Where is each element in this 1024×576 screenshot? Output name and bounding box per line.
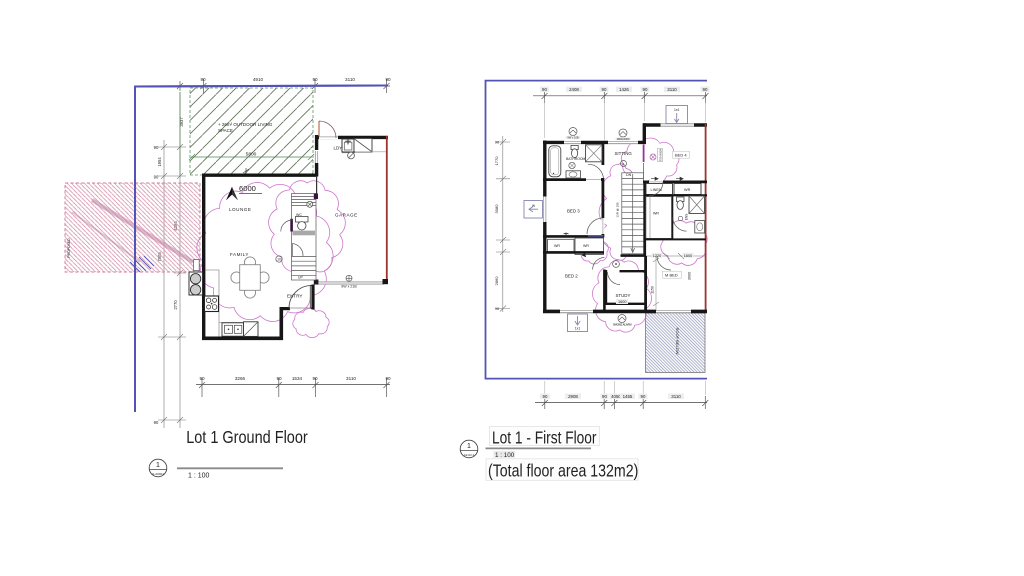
svg-text:W: W: [532, 204, 535, 208]
svg-text:1455: 1455: [623, 394, 633, 399]
svg-text:90: 90: [495, 306, 500, 311]
svg-text:10: 10: [277, 258, 281, 262]
svg-text:Lot 1 Ground Floor: Lot 1 Ground Floor: [186, 428, 308, 448]
svg-text:90: 90: [312, 77, 318, 82]
svg-text:13R @ 185: 13R @ 185: [616, 202, 620, 218]
svg-text:UP: UP: [298, 276, 303, 280]
svg-text:1600: 1600: [618, 300, 626, 304]
svg-text:3110: 3110: [671, 394, 681, 399]
svg-text:STUDY: STUDY: [616, 293, 631, 298]
svg-text:WC: WC: [296, 213, 302, 217]
svg-text:DN: DN: [626, 173, 632, 177]
svg-text:90: 90: [542, 87, 547, 92]
svg-text:90: 90: [154, 145, 159, 150]
svg-text:1 : 100: 1 : 100: [188, 473, 210, 480]
svg-text:3937: 3937: [179, 117, 184, 127]
svg-text:3080: 3080: [494, 204, 499, 214]
svg-text:ROOF BELOW: ROOF BELOW: [675, 327, 680, 354]
svg-text:1800x2000: 1800x2000: [617, 137, 630, 141]
svg-text:5800: 5800: [246, 152, 257, 158]
svg-text:2860: 2860: [494, 276, 499, 286]
svg-text:1150: 1150: [651, 286, 655, 294]
svg-text:PROPOSED: PROPOSED: [67, 238, 71, 258]
svg-text:90: 90: [602, 87, 607, 92]
svg-text:90: 90: [312, 376, 318, 381]
svg-text:750 HIGH: 750 HIGH: [659, 149, 663, 161]
svg-text:FAMILY: FAMILY: [230, 252, 249, 257]
svg-text:4910: 4910: [253, 77, 264, 82]
svg-text:2408: 2408: [569, 87, 579, 92]
svg-text:BED 3: BED 3: [567, 209, 580, 214]
svg-text:90: 90: [543, 394, 548, 399]
svg-text:6000: 6000: [239, 184, 256, 193]
svg-text:1954: 1954: [157, 157, 162, 167]
svg-text:+ 26m² OUTDOOR LIVING: + 26m² OUTDOOR LIVING: [218, 122, 273, 127]
svg-text:WR: WR: [554, 244, 560, 248]
svg-text:3110: 3110: [667, 87, 677, 92]
svg-text:90: 90: [154, 420, 159, 425]
svg-text:A: A: [622, 162, 624, 166]
svg-text:SITTING: SITTING: [615, 151, 633, 156]
svg-text:90: 90: [200, 77, 206, 82]
svg-text:9W x 21B: 9W x 21B: [341, 285, 357, 289]
svg-text:LOUNGE: LOUNGE: [229, 207, 251, 212]
svg-text:Lot 1 - First Floor: Lot 1 - First Floor: [492, 429, 597, 448]
svg-text:1534: 1534: [292, 376, 303, 381]
svg-text:A2-02.2: A2-02.2: [464, 453, 475, 457]
svg-text:BATHROOM: BATHROOM: [566, 157, 586, 161]
svg-text:1 : 100: 1 : 100: [495, 452, 515, 459]
svg-text:S-A000J: S-A000J: [152, 472, 164, 476]
svg-text:3266: 3266: [235, 376, 246, 381]
svg-text:2908: 2908: [568, 394, 578, 399]
svg-text:90: 90: [602, 394, 607, 399]
svg-text:LDY: LDY: [334, 146, 343, 151]
svg-text:GARAGE: GARAGE: [335, 213, 358, 218]
svg-text:90: 90: [385, 77, 391, 82]
svg-text:ENS: ENS: [685, 214, 689, 221]
svg-text:90: 90: [385, 376, 391, 381]
svg-text:(Total floor area 132m2): (Total floor area 132m2): [488, 461, 638, 481]
svg-text:90: 90: [643, 87, 648, 92]
svg-text:3110: 3110: [346, 376, 356, 381]
svg-text:2770: 2770: [173, 300, 178, 310]
svg-text:4050: 4050: [611, 394, 621, 399]
svg-text:SPACE: SPACE: [218, 128, 233, 133]
svg-text:3110: 3110: [345, 77, 355, 82]
svg-text:1426: 1426: [619, 87, 629, 92]
svg-text:1x1: 1x1: [674, 108, 680, 112]
svg-text:9W x 10B: 9W x 10B: [567, 135, 579, 139]
svg-text:BED 2: BED 2: [565, 274, 578, 279]
svg-text:1600: 1600: [684, 254, 692, 258]
svg-text:WR: WR: [653, 212, 659, 216]
svg-text:90: 90: [703, 87, 708, 92]
svg-text:90: 90: [495, 140, 500, 145]
svg-text:90: 90: [641, 394, 646, 399]
svg-text:WR: WR: [684, 188, 691, 192]
svg-text:BED 4: BED 4: [675, 152, 687, 157]
svg-text:90: 90: [154, 175, 159, 180]
svg-text:90: 90: [276, 376, 282, 381]
svg-text:1x1: 1x1: [575, 327, 581, 331]
svg-text:3000: 3000: [688, 272, 692, 280]
svg-text:SMOKE ALARM: SMOKE ALARM: [613, 322, 632, 326]
svg-text:1770: 1770: [494, 156, 499, 166]
svg-text:1: 1: [156, 462, 160, 469]
svg-text:M BED: M BED: [665, 272, 678, 277]
svg-text:WR: WR: [583, 244, 589, 248]
svg-text:ENTRY: ENTRY: [287, 294, 303, 299]
svg-text:1: 1: [467, 443, 471, 450]
svg-text:90: 90: [199, 376, 205, 381]
